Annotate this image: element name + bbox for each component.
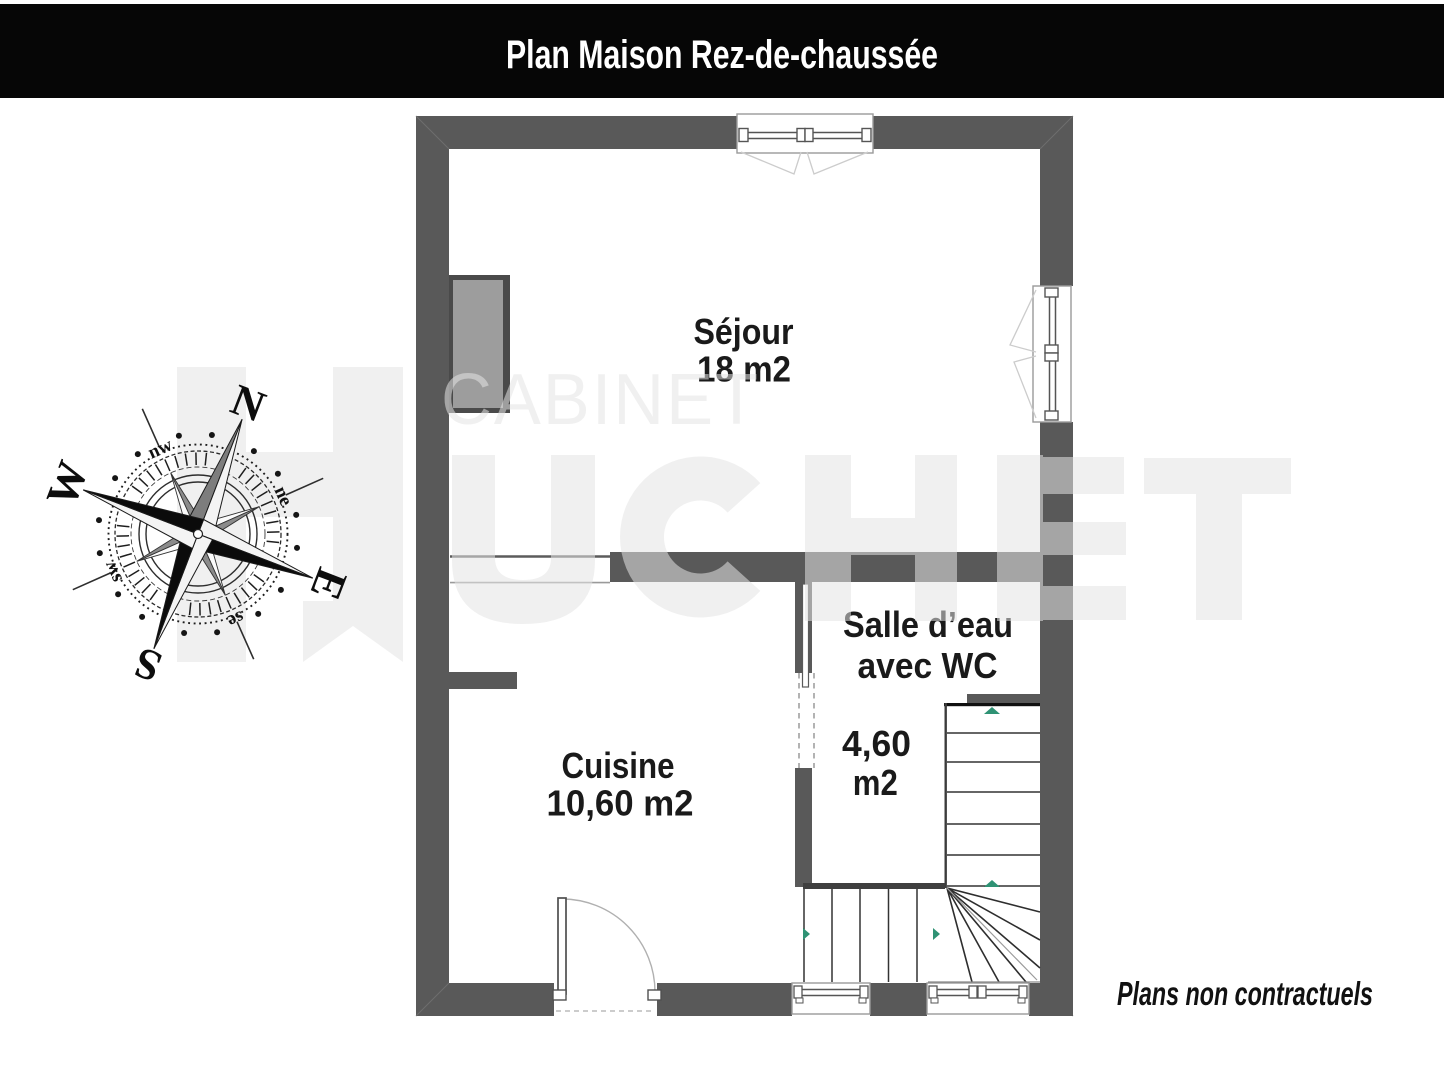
svg-text:CABINET: CABINET <box>441 360 760 440</box>
svg-text:avec WC: avec WC <box>858 645 998 686</box>
svg-text:Plan Maison Rez-de-chaussée: Plan Maison Rez-de-chaussée <box>506 33 938 77</box>
svg-text:4,60: 4,60 <box>842 723 911 764</box>
svg-text:m2: m2 <box>853 762 898 803</box>
svg-text:10,60 m2: 10,60 m2 <box>547 783 694 824</box>
svg-text:Séjour: Séjour <box>694 311 794 352</box>
svg-text:Cuisine: Cuisine <box>562 745 675 786</box>
svg-text:Plans non contractuels: Plans non contractuels <box>1117 975 1373 1012</box>
